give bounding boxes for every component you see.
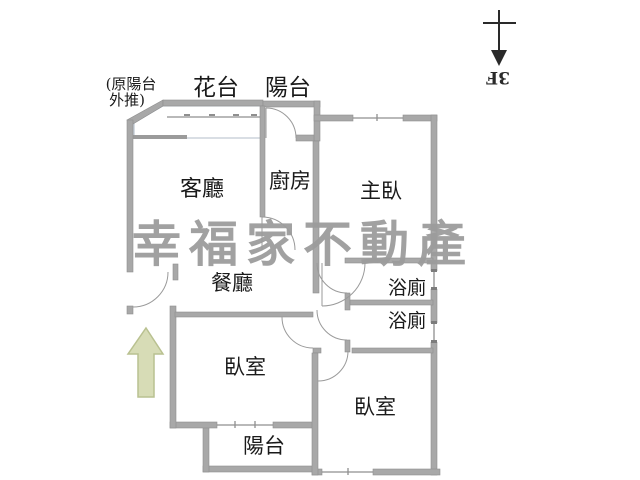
wall-segment (352, 348, 433, 353)
entrance-arrow-icon (128, 328, 163, 397)
room-label-bottom-balcony: 陽台 (243, 434, 285, 458)
wall-segment (314, 115, 353, 121)
wall-segment (431, 115, 437, 475)
window-tick (233, 114, 239, 116)
room-label-dining-room: 餐廳 (211, 271, 253, 295)
window-frame (431, 321, 437, 324)
room-label-kitchen: 廚房 (269, 169, 311, 193)
room-label-bedroom-left: 臥室 (224, 355, 266, 379)
wall-segment (345, 293, 350, 310)
window-tick (251, 114, 257, 116)
wall-segment (170, 422, 217, 428)
room-label-living-room: 客廳 (180, 177, 224, 202)
window-tick (209, 114, 215, 116)
wall-segment (170, 306, 176, 428)
wall-segment (345, 340, 350, 352)
note-original-balcony-line2: 外推) (109, 91, 145, 109)
room-label-top-balcony: 陽台 (265, 75, 311, 101)
window-frame (431, 340, 437, 343)
wall-segment (312, 353, 318, 475)
wall-segment (373, 469, 440, 475)
window-frame (431, 287, 437, 290)
watermark-text: 幸福家不動產 (132, 218, 474, 272)
wall-segment (273, 422, 313, 428)
room-label-flower-bed: 花台 (193, 75, 239, 101)
room-label-bathroom-lower: 浴廁 (388, 309, 426, 332)
floorplan-drawing: 3F (0, 0, 640, 480)
room-label-bathroom-upper: 浴廁 (388, 276, 426, 299)
wall-segment (203, 427, 209, 472)
window-tick (184, 114, 190, 116)
compass-arrowhead-icon (491, 50, 507, 66)
wall-segment (313, 348, 321, 353)
door-arc (317, 310, 347, 340)
wall-segment (350, 300, 433, 305)
room-label-bedroom-right: 臥室 (354, 395, 396, 419)
wall-segment (260, 106, 265, 217)
wall-segment (263, 101, 320, 107)
floorplan-canvas: 3F (0, 0, 640, 480)
north-arrow-compass: 3F (483, 10, 516, 87)
room-label-master-bedroom: 主臥 (360, 179, 402, 203)
door-arc (133, 272, 168, 307)
wall-segment (203, 466, 315, 472)
compass-floor-label: 3F (486, 67, 510, 87)
wall-segment (127, 306, 133, 314)
door-arc (282, 317, 313, 348)
old-balcony-wall-trace (133, 135, 187, 139)
wall-segment (296, 135, 314, 141)
wall-segment (175, 312, 313, 317)
door-arc (318, 351, 348, 381)
door-arc (266, 108, 296, 138)
